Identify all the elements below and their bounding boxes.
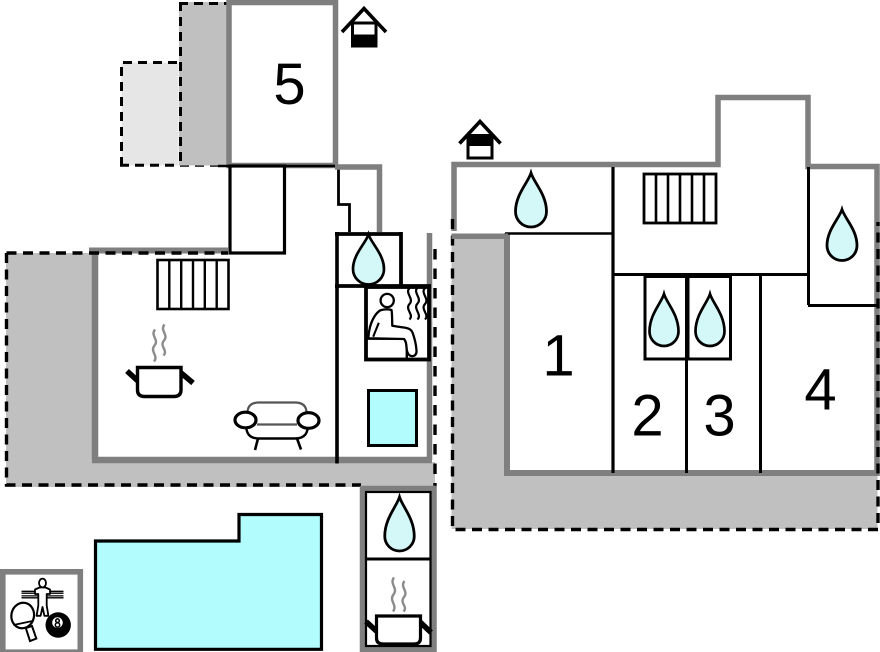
svg-text:2: 2 (631, 384, 663, 449)
svg-text:3: 3 (703, 384, 735, 449)
svg-text:5: 5 (273, 52, 305, 117)
svg-text:1: 1 (542, 324, 574, 389)
svg-text:4: 4 (804, 358, 836, 423)
